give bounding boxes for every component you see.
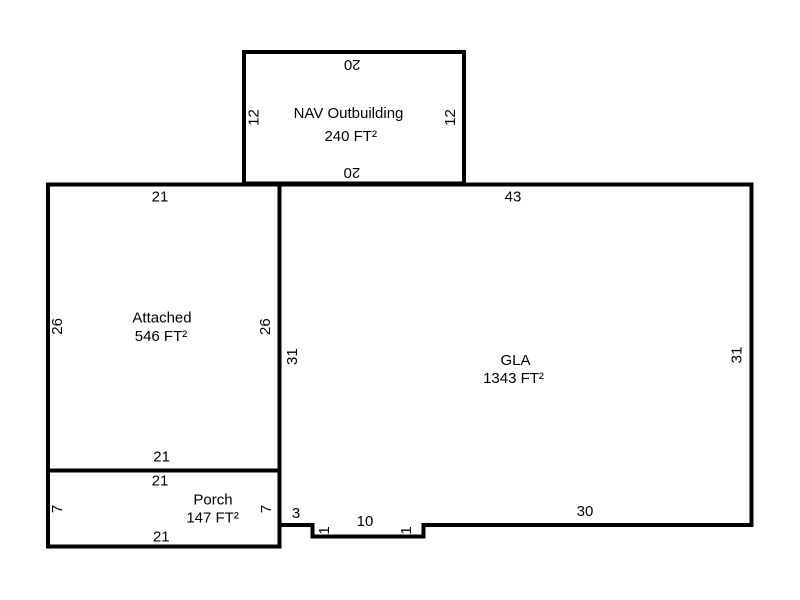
svg-text:26: 26: [257, 318, 274, 335]
svg-text:12: 12: [245, 109, 262, 126]
svg-text:21: 21: [152, 189, 169, 206]
svg-text:20: 20: [344, 164, 361, 181]
svg-text:31: 31: [728, 347, 745, 364]
svg-text:10: 10: [357, 513, 374, 530]
svg-text:21: 21: [152, 473, 169, 490]
svg-text:26: 26: [49, 318, 66, 335]
svg-text:1: 1: [398, 526, 415, 534]
svg-text:31: 31: [284, 348, 301, 365]
svg-text:Porch: Porch: [193, 491, 232, 508]
svg-text:1: 1: [316, 526, 333, 534]
svg-text:30: 30: [577, 503, 594, 520]
svg-text:21: 21: [153, 528, 170, 545]
svg-text:43: 43: [505, 189, 522, 206]
svg-text:546 FT²: 546 FT²: [135, 328, 188, 345]
svg-text:147 FT²: 147 FT²: [186, 509, 239, 526]
svg-text:240 FT²: 240 FT²: [324, 128, 377, 145]
svg-text:7: 7: [49, 505, 66, 513]
svg-text:12: 12: [442, 109, 459, 126]
svg-text:NAV Outbuilding: NAV Outbuilding: [294, 105, 404, 122]
svg-text:3: 3: [292, 505, 300, 522]
svg-text:21: 21: [153, 448, 170, 465]
svg-text:7: 7: [258, 505, 275, 513]
svg-text:Attached: Attached: [132, 309, 191, 326]
svg-text:20: 20: [344, 56, 361, 73]
svg-text:GLA: GLA: [500, 352, 530, 369]
svg-text:1343 FT²: 1343 FT²: [483, 370, 544, 387]
